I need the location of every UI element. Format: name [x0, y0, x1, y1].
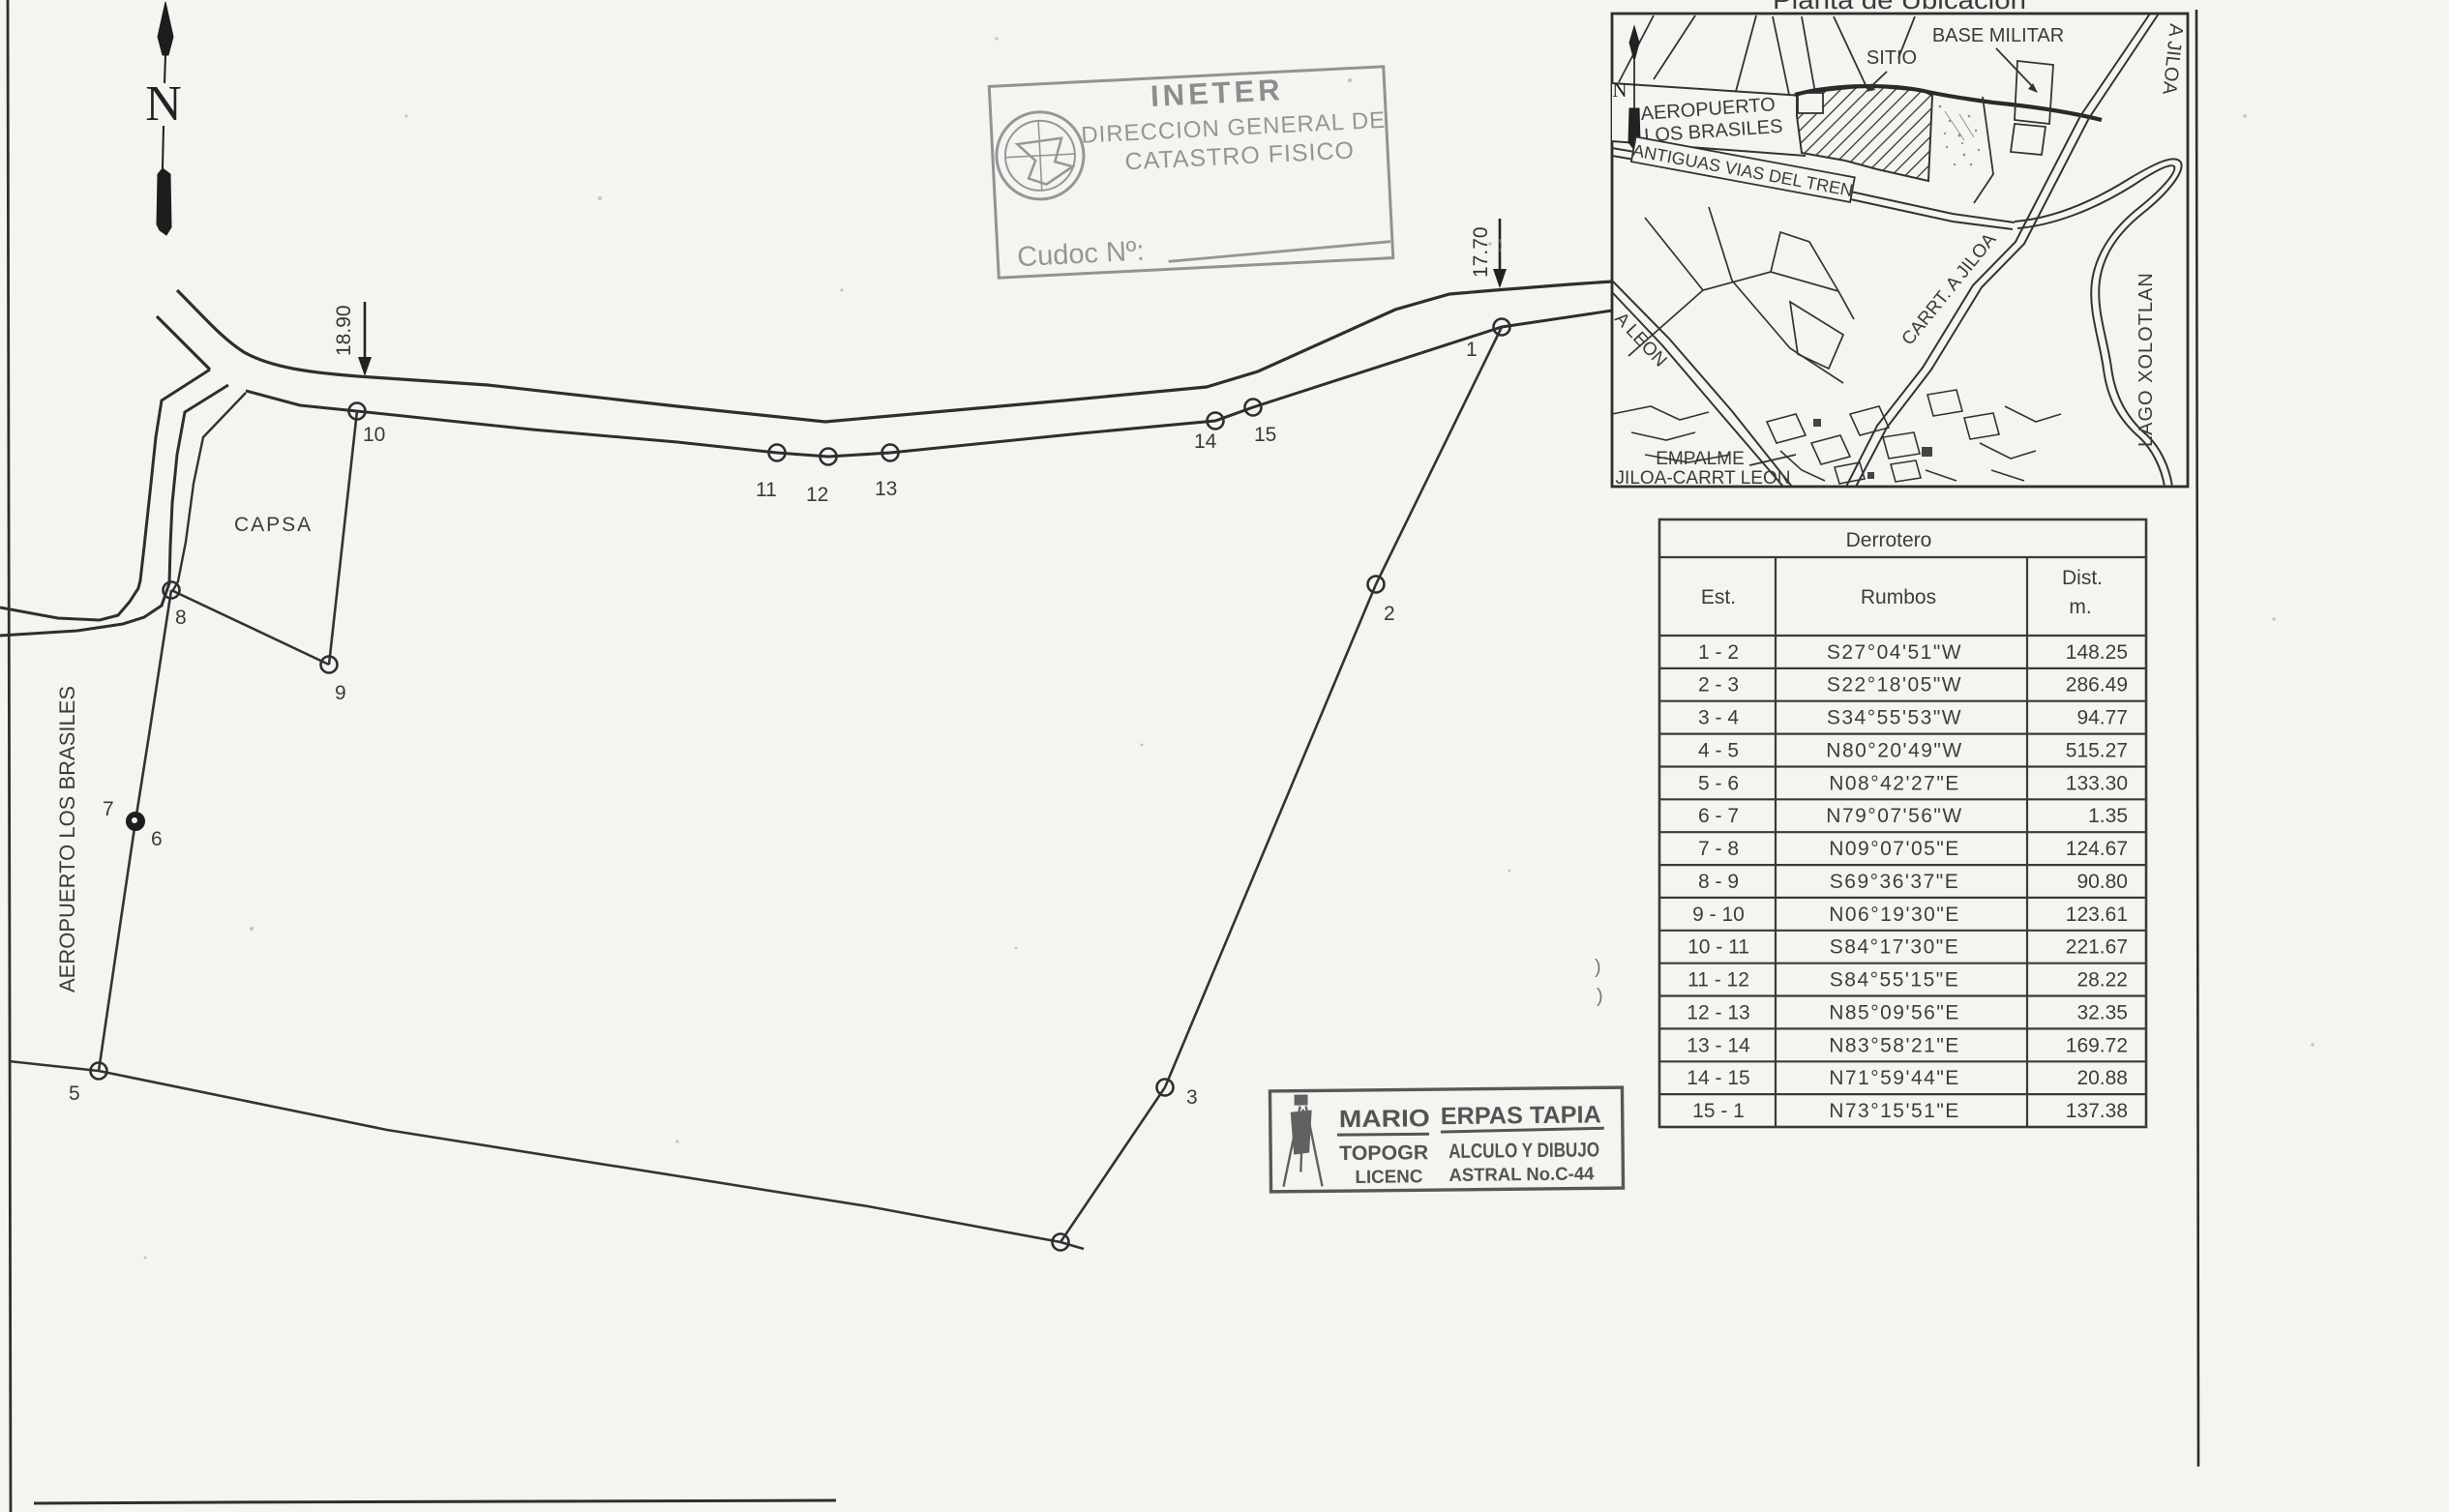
svg-text:2: 2 [1384, 603, 1395, 625]
svg-text:124.67: 124.67 [2066, 838, 2128, 860]
svg-text:10 - 11: 10 - 11 [1687, 936, 1749, 959]
svg-text:Planta de Ubicación: Planta de Ubicación [1773, 0, 2026, 15]
svg-text:9 - 10: 9 - 10 [1692, 904, 1745, 926]
svg-text:Derrotero: Derrotero [1846, 529, 1932, 551]
svg-text:169.72: 169.72 [2066, 1034, 2128, 1056]
svg-text:N: N [145, 76, 182, 132]
svg-text:ERPAS TAPIA: ERPAS TAPIA [1441, 1101, 1601, 1130]
svg-text:SITIO: SITIO [1867, 47, 1917, 69]
svg-text:8: 8 [175, 607, 187, 629]
svg-text:S27°04'51"W: S27°04'51"W [1827, 641, 1962, 664]
svg-text:5 - 6: 5 - 6 [1698, 772, 1739, 794]
svg-text:133.30: 133.30 [2066, 772, 2128, 794]
svg-text:3: 3 [1186, 1086, 1198, 1109]
svg-text:N09°07'05"E: N09°07'05"E [1829, 838, 1960, 860]
svg-text:EMPALME: EMPALME [1656, 449, 1745, 469]
svg-text:ASTRAL No.C-44: ASTRAL No.C-44 [1448, 1164, 1595, 1186]
svg-text:15: 15 [1254, 424, 1276, 446]
svg-text:13: 13 [875, 478, 897, 500]
svg-text:7 - 8: 7 - 8 [1698, 838, 1739, 860]
svg-text:515.27: 515.27 [2066, 740, 2128, 762]
svg-text:20.88: 20.88 [2076, 1067, 2128, 1089]
svg-text:Rumbos: Rumbos [1861, 586, 1936, 608]
svg-text:18.90: 18.90 [333, 305, 355, 356]
svg-text:m.: m. [2069, 596, 2091, 618]
svg-text:ALCULO Y DIBUJO: ALCULO Y DIBUJO [1448, 1139, 1599, 1163]
svg-text:S84°17'30"E: S84°17'30"E [1830, 936, 1959, 959]
svg-text:6: 6 [151, 828, 163, 850]
svg-text:11: 11 [756, 479, 777, 501]
svg-text:3 - 4: 3 - 4 [1698, 707, 1739, 729]
svg-text:15 - 1: 15 - 1 [1692, 1100, 1745, 1122]
svg-text:6 - 7: 6 - 7 [1698, 805, 1739, 827]
svg-text:MARIO: MARIO [1339, 1105, 1430, 1133]
svg-text:137.38: 137.38 [2066, 1100, 2128, 1122]
svg-text:N06°19'30"E: N06°19'30"E [1829, 904, 1960, 926]
svg-text:1 - 2: 1 - 2 [1698, 641, 1739, 664]
svg-text:14: 14 [1194, 430, 1217, 453]
svg-text:2 - 3: 2 - 3 [1698, 674, 1739, 697]
svg-text:90.80: 90.80 [2076, 871, 2128, 893]
svg-text:BASE MILITAR: BASE MILITAR [1932, 25, 2064, 46]
svg-text:148.25: 148.25 [2066, 641, 2128, 664]
svg-text:N: N [1612, 78, 1627, 102]
svg-text:1.35: 1.35 [2088, 805, 2128, 827]
svg-text:286.49: 286.49 [2066, 674, 2128, 697]
svg-text:LICENC: LICENC [1355, 1167, 1422, 1188]
svg-text:9: 9 [335, 682, 346, 704]
svg-text:13 - 14: 13 - 14 [1687, 1034, 1750, 1056]
svg-text:Dist.: Dist. [2062, 567, 2103, 589]
svg-text:): ) [1597, 986, 1603, 1007]
svg-text:5: 5 [69, 1082, 80, 1105]
svg-text:): ) [1595, 957, 1601, 978]
svg-text:Cudoc Nº:: Cudoc Nº: [1016, 236, 1145, 274]
svg-text:221.67: 221.67 [2066, 936, 2128, 959]
svg-text:28.22: 28.22 [2076, 969, 2128, 992]
svg-text:TOPOGR: TOPOGR [1339, 1141, 1428, 1165]
svg-text:10: 10 [363, 424, 385, 446]
svg-text:12 - 13: 12 - 13 [1687, 1001, 1749, 1023]
svg-text:4 - 5: 4 - 5 [1698, 740, 1739, 762]
svg-text:32.35: 32.35 [2076, 1001, 2128, 1023]
svg-text:11 - 12: 11 - 12 [1687, 969, 1749, 992]
svg-text:AEROPUERTO LOS BRASILES: AEROPUERTO LOS BRASILES [55, 686, 79, 993]
svg-text:S34°55'53"W: S34°55'53"W [1827, 707, 1962, 729]
svg-text:17.70: 17.70 [1470, 226, 1492, 278]
svg-text:N83°58'21"E: N83°58'21"E [1829, 1034, 1960, 1056]
svg-text:14 - 15: 14 - 15 [1687, 1067, 1749, 1089]
svg-text:N85°09'56"E: N85°09'56"E [1829, 1001, 1960, 1023]
svg-text:LAGO XOLOTLAN: LAGO XOLOTLAN [2135, 272, 2157, 447]
svg-text:S22°18'05"W: S22°18'05"W [1827, 674, 1962, 697]
svg-text:N73°15'51"E: N73°15'51"E [1829, 1100, 1960, 1122]
svg-text:N80°20'49"W: N80°20'49"W [1826, 740, 1962, 762]
svg-text:CAPSA: CAPSA [234, 514, 313, 536]
svg-text:1: 1 [1466, 339, 1478, 361]
svg-text:8 - 9: 8 - 9 [1698, 871, 1739, 893]
svg-text:S84°55'15"E: S84°55'15"E [1830, 969, 1959, 992]
svg-text:94.77: 94.77 [2076, 707, 2128, 729]
svg-text:7: 7 [103, 798, 114, 820]
svg-text:N71°59'44"E: N71°59'44"E [1829, 1067, 1960, 1089]
svg-text:Est.: Est. [1701, 586, 1736, 608]
svg-text:N08°42'27"E: N08°42'27"E [1829, 772, 1960, 794]
svg-text:123.61: 123.61 [2066, 904, 2128, 926]
svg-text:JILOA-CARRT LEON: JILOA-CARRT LEON [1616, 468, 1791, 489]
svg-text:S69°36'37"E: S69°36'37"E [1830, 871, 1959, 893]
svg-text:N79°07'56"W: N79°07'56"W [1826, 805, 1962, 827]
svg-text:INETER: INETER [1150, 73, 1284, 113]
svg-text:12: 12 [806, 484, 828, 506]
